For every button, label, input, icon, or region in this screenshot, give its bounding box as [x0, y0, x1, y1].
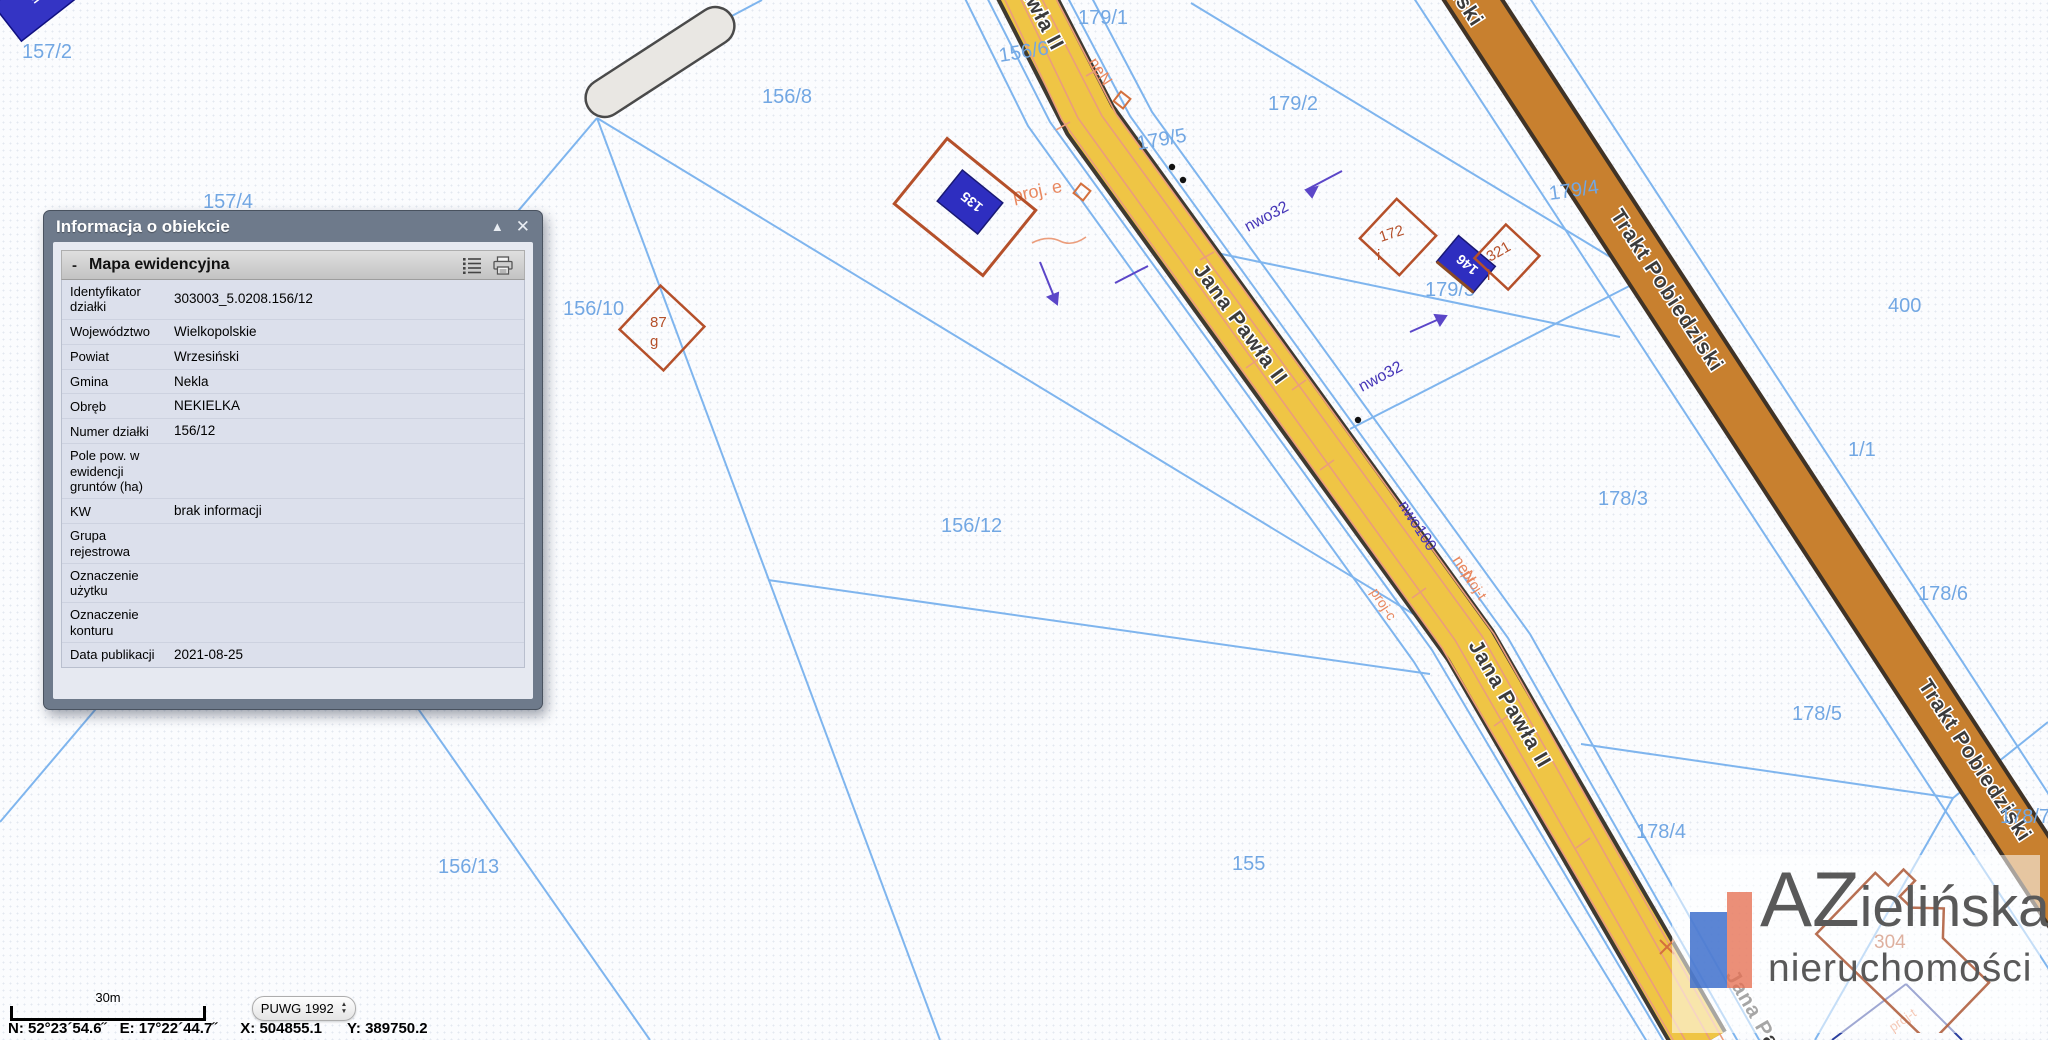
parcel-label-156-12: 156/12 — [941, 515, 1002, 537]
logo-subtitle: nieruchomości — [1768, 947, 2032, 991]
field-label: Powiat — [70, 349, 164, 364]
building-87: 87 g — [620, 286, 705, 371]
field-label: Gmina — [70, 374, 164, 389]
parcel-label-178-4: 178/4 — [1636, 821, 1686, 843]
parcel-label-156-10: 156/10 — [563, 298, 624, 320]
field-label: Oznaczenie użytku — [70, 568, 164, 599]
label-nwo32-top: nwo32 — [1242, 198, 1292, 235]
section-header-mapa-ewidencyjna[interactable]: - Mapa ewidencyjna — [61, 250, 525, 280]
field-value: 156/12 — [174, 423, 516, 439]
parcel-label-157-2: 157/2 — [22, 41, 72, 63]
parcel-label-178-3: 178/3 — [1598, 488, 1648, 510]
table-row: Oznaczenie użytku — [62, 564, 524, 604]
logo-brand-rest: ielińska — [1860, 875, 2048, 939]
building-172: 172 i — [1360, 199, 1436, 275]
select-updown-icon: ▲▼ — [341, 1002, 347, 1014]
field-label: Grupa rejestrowa — [70, 528, 164, 559]
field-label: Pole pow. w ewidencji gruntów (ha) — [70, 448, 164, 494]
info-popup-body: - Mapa ewidencyjna — [53, 242, 533, 699]
crs-selector-value: PUWG 1992 — [261, 1001, 334, 1016]
section-collapse-button[interactable]: - — [72, 257, 77, 274]
logo-red-square — [1727, 892, 1752, 988]
building-capsule-gray — [578, 0, 741, 124]
parcel-label-178-5: 178/5 — [1792, 703, 1842, 725]
print-icon[interactable] — [492, 256, 514, 275]
table-row: Identyfikator działki303003_5.0208.156/1… — [62, 280, 524, 320]
info-popup: Informacja o obiekcie ▲ ✕ - Mapa ewidenc… — [43, 210, 543, 710]
crs-selector[interactable]: PUWG 1992 ▲▼ — [252, 996, 356, 1021]
agency-watermark: AZielińska nieruchomości — [1672, 855, 2040, 1033]
table-row: Numer działki156/12 — [62, 419, 524, 444]
building-135: 135 — [894, 138, 1035, 275]
field-label: Data publikacji — [70, 647, 164, 662]
field-label: KW — [70, 504, 164, 519]
attribute-table: Identyfikator działki303003_5.0208.156/1… — [61, 280, 525, 668]
scale-bar-label: 30m — [10, 990, 206, 1005]
popup-close-icon[interactable]: ✕ — [516, 218, 530, 235]
field-value: NEKIELKA — [174, 398, 516, 414]
parcel-label-400: 400 — [1888, 295, 1921, 317]
label-nwo32-bottom: nwo32 — [1356, 358, 1406, 395]
parcel-label-179-1: 179/1 — [1078, 7, 1128, 29]
table-row: WojewództwoWielkopolskie — [62, 320, 524, 345]
field-value: Wielkopolskie — [174, 324, 516, 340]
building-87-label: 87 — [650, 314, 667, 331]
logo-brand: AZielińska — [1760, 857, 2048, 943]
coordinate-readout: N: 52°23´54.6˝ E: 17°22´44.7˝ X: 504855.… — [8, 1020, 441, 1037]
coord-e: E: 17°22´44.7˝ — [120, 1020, 218, 1037]
section-title: Mapa ewidencyjna — [89, 256, 230, 274]
scale-bar-bracket — [10, 1006, 206, 1021]
road-label-trakt-mid: Trakt Pobiedziski — [1606, 205, 1728, 376]
field-value: brak informacji — [174, 503, 516, 519]
parcel-label-179-2: 179/2 — [1268, 93, 1318, 115]
field-value: 2021-08-25 — [174, 647, 516, 663]
table-row: Pole pow. w ewidencji gruntów (ha) — [62, 444, 524, 499]
field-value: 303003_5.0208.156/12 — [174, 291, 516, 307]
scale-bar: 30m — [10, 990, 206, 1021]
table-row: Data publikacji2021-08-25 — [62, 643, 524, 667]
field-label: Obręb — [70, 399, 164, 414]
map-viewer: 1/1 178/6 — [0, 0, 2048, 1040]
coord-n: N: 52°23´54.6˝ — [8, 1020, 107, 1037]
parcel-label-178-7: 178/7 — [2000, 806, 2048, 828]
info-popup-title: Informacja o obiekcie — [56, 217, 230, 237]
table-row: PowiatWrzesiński — [62, 345, 524, 370]
building-145: 145 — [0, 0, 84, 41]
parcel-label-1-1: 1/1 — [1848, 439, 1876, 461]
field-label: Identyfikator działki — [70, 284, 164, 315]
building-321-i: i — [1487, 267, 1490, 284]
parcel-label-155: 155 — [1232, 853, 1265, 875]
field-label: Oznaczenie konturu — [70, 607, 164, 638]
table-row: Grupa rejestrowa — [62, 524, 524, 564]
logo-brand-initials: AZ — [1760, 855, 1860, 943]
building-87-g: g — [650, 333, 658, 350]
field-value: Wrzesiński — [174, 349, 516, 365]
building-172-label: 172 — [1377, 222, 1406, 246]
field-value: Nekla — [174, 374, 516, 390]
info-popup-titlebar[interactable]: Informacja o obiekcie ▲ ✕ — [44, 211, 542, 242]
road-label-trakt-top: Trakt Pobiedziski — [1366, 0, 1488, 31]
table-row: GminaNekla — [62, 370, 524, 395]
parcel-label-178-6: 178/6 — [1918, 583, 1968, 605]
building-172-i: i — [1377, 247, 1380, 264]
parcel-label-156-13: 156/13 — [438, 856, 499, 878]
coord-x: X: 504855.1 — [240, 1020, 322, 1037]
logo-blue-square — [1690, 912, 1727, 988]
table-row: Oznaczenie konturu — [62, 603, 524, 643]
table-row: ObrębNEKIELKA — [62, 394, 524, 419]
popup-collapse-icon[interactable]: ▲ — [491, 220, 504, 233]
list-icon[interactable] — [462, 256, 482, 274]
field-label: Numer działki — [70, 424, 164, 439]
parcel-label-156-8: 156/8 — [762, 86, 812, 108]
table-row: KWbrak informacji — [62, 499, 524, 524]
field-label: Województwo — [70, 324, 164, 339]
label-proj-e: proj. e — [1011, 176, 1064, 206]
coord-y: Y: 389750.2 — [347, 1020, 428, 1037]
